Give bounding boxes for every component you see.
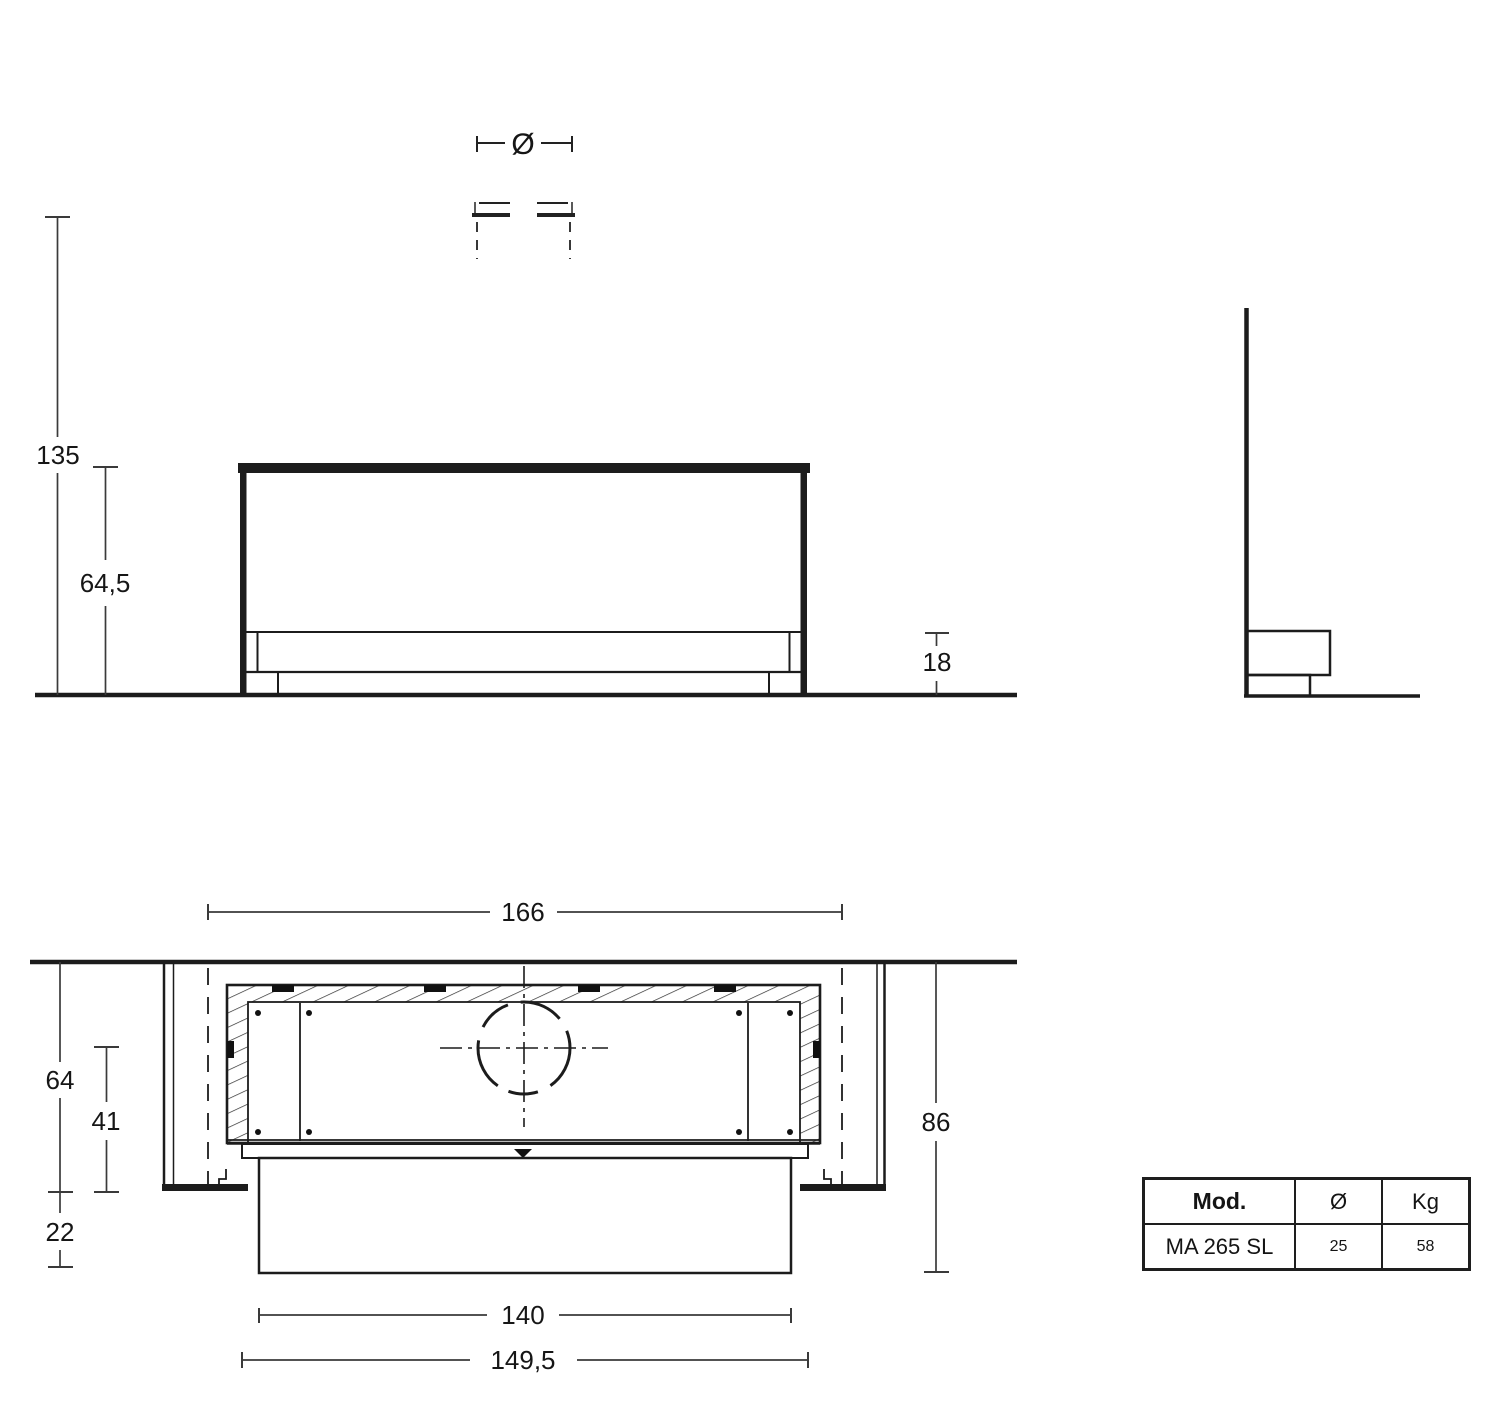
side-plinth xyxy=(1246,675,1310,696)
spec-table-header-mod: Mod. xyxy=(1145,1180,1296,1225)
dim-label-149-5: 149,5 xyxy=(490,1345,555,1375)
front-elevation-view xyxy=(35,463,1017,695)
spec-table-kg-cell: 58 xyxy=(1383,1225,1468,1268)
dim-label-41: 41 xyxy=(92,1106,121,1136)
dim-label-166: 166 xyxy=(501,897,544,927)
spec-table: Mod. Ø Kg MA 265 SL 25 58 xyxy=(1142,1177,1471,1271)
right-wall-cap xyxy=(800,1184,886,1191)
dim-label-135: 135 xyxy=(36,440,79,470)
spec-table-diameter-cell: 25 xyxy=(1296,1225,1383,1268)
side-firebox xyxy=(1246,631,1330,675)
fireplace-top-bar xyxy=(238,463,810,473)
front-panel xyxy=(259,1158,791,1273)
spec-table-header-kg: Kg xyxy=(1383,1180,1468,1225)
dim-label-22: 22 xyxy=(46,1217,75,1247)
dim-label-140: 140 xyxy=(501,1300,544,1330)
plan-section-view xyxy=(30,962,1017,1273)
side-elevation-view xyxy=(1244,308,1420,696)
spec-table-model-cell: MA 265 SL xyxy=(1145,1225,1296,1268)
dim-label-diameter: Ø xyxy=(511,128,534,161)
dim-label-86: 86 xyxy=(922,1107,951,1137)
left-wall-cap xyxy=(162,1184,248,1191)
fireplace-left-edge xyxy=(240,463,247,695)
fireplace-right-edge xyxy=(801,463,808,695)
technical-drawing-sheet: Ø 135 64,5 18 xyxy=(0,0,1500,1427)
spec-table-header-diameter: Ø xyxy=(1296,1180,1383,1225)
dim-label-18: 18 xyxy=(923,647,952,677)
dim-label-64: 64 xyxy=(46,1065,75,1095)
dim-label-64-5: 64,5 xyxy=(80,568,131,598)
center-mark-arrow xyxy=(514,1149,532,1158)
